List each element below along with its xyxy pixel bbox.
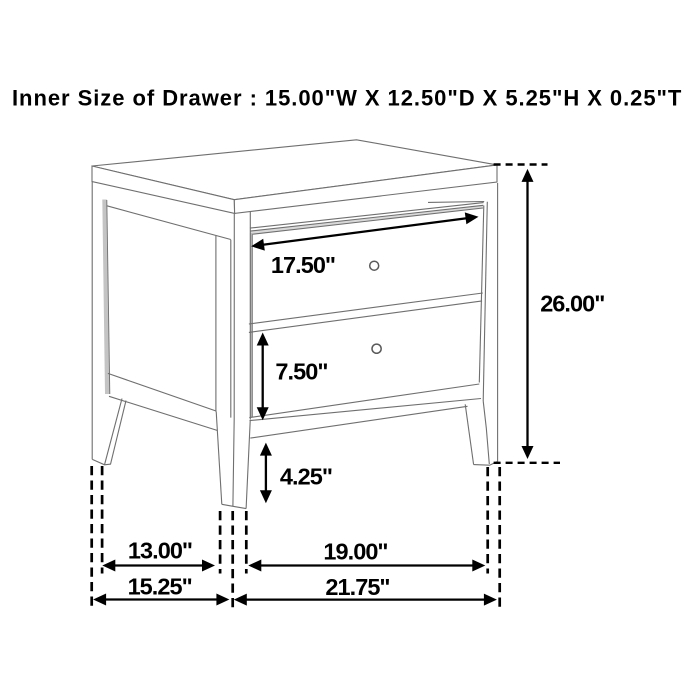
svg-text:15.25": 15.25" xyxy=(128,574,192,600)
svg-text:21.75": 21.75" xyxy=(325,574,389,600)
svg-text:17.50": 17.50" xyxy=(271,252,335,278)
svg-text:7.50": 7.50" xyxy=(275,359,327,385)
svg-text:26.00": 26.00" xyxy=(540,291,604,317)
svg-text:4.25": 4.25" xyxy=(280,464,332,490)
svg-text:Inner Size of Drawer : 15.00"W: Inner Size of Drawer : 15.00"W X 12.50"D… xyxy=(12,85,682,110)
svg-text:13.00": 13.00" xyxy=(128,538,192,564)
svg-text:19.00": 19.00" xyxy=(323,539,387,565)
